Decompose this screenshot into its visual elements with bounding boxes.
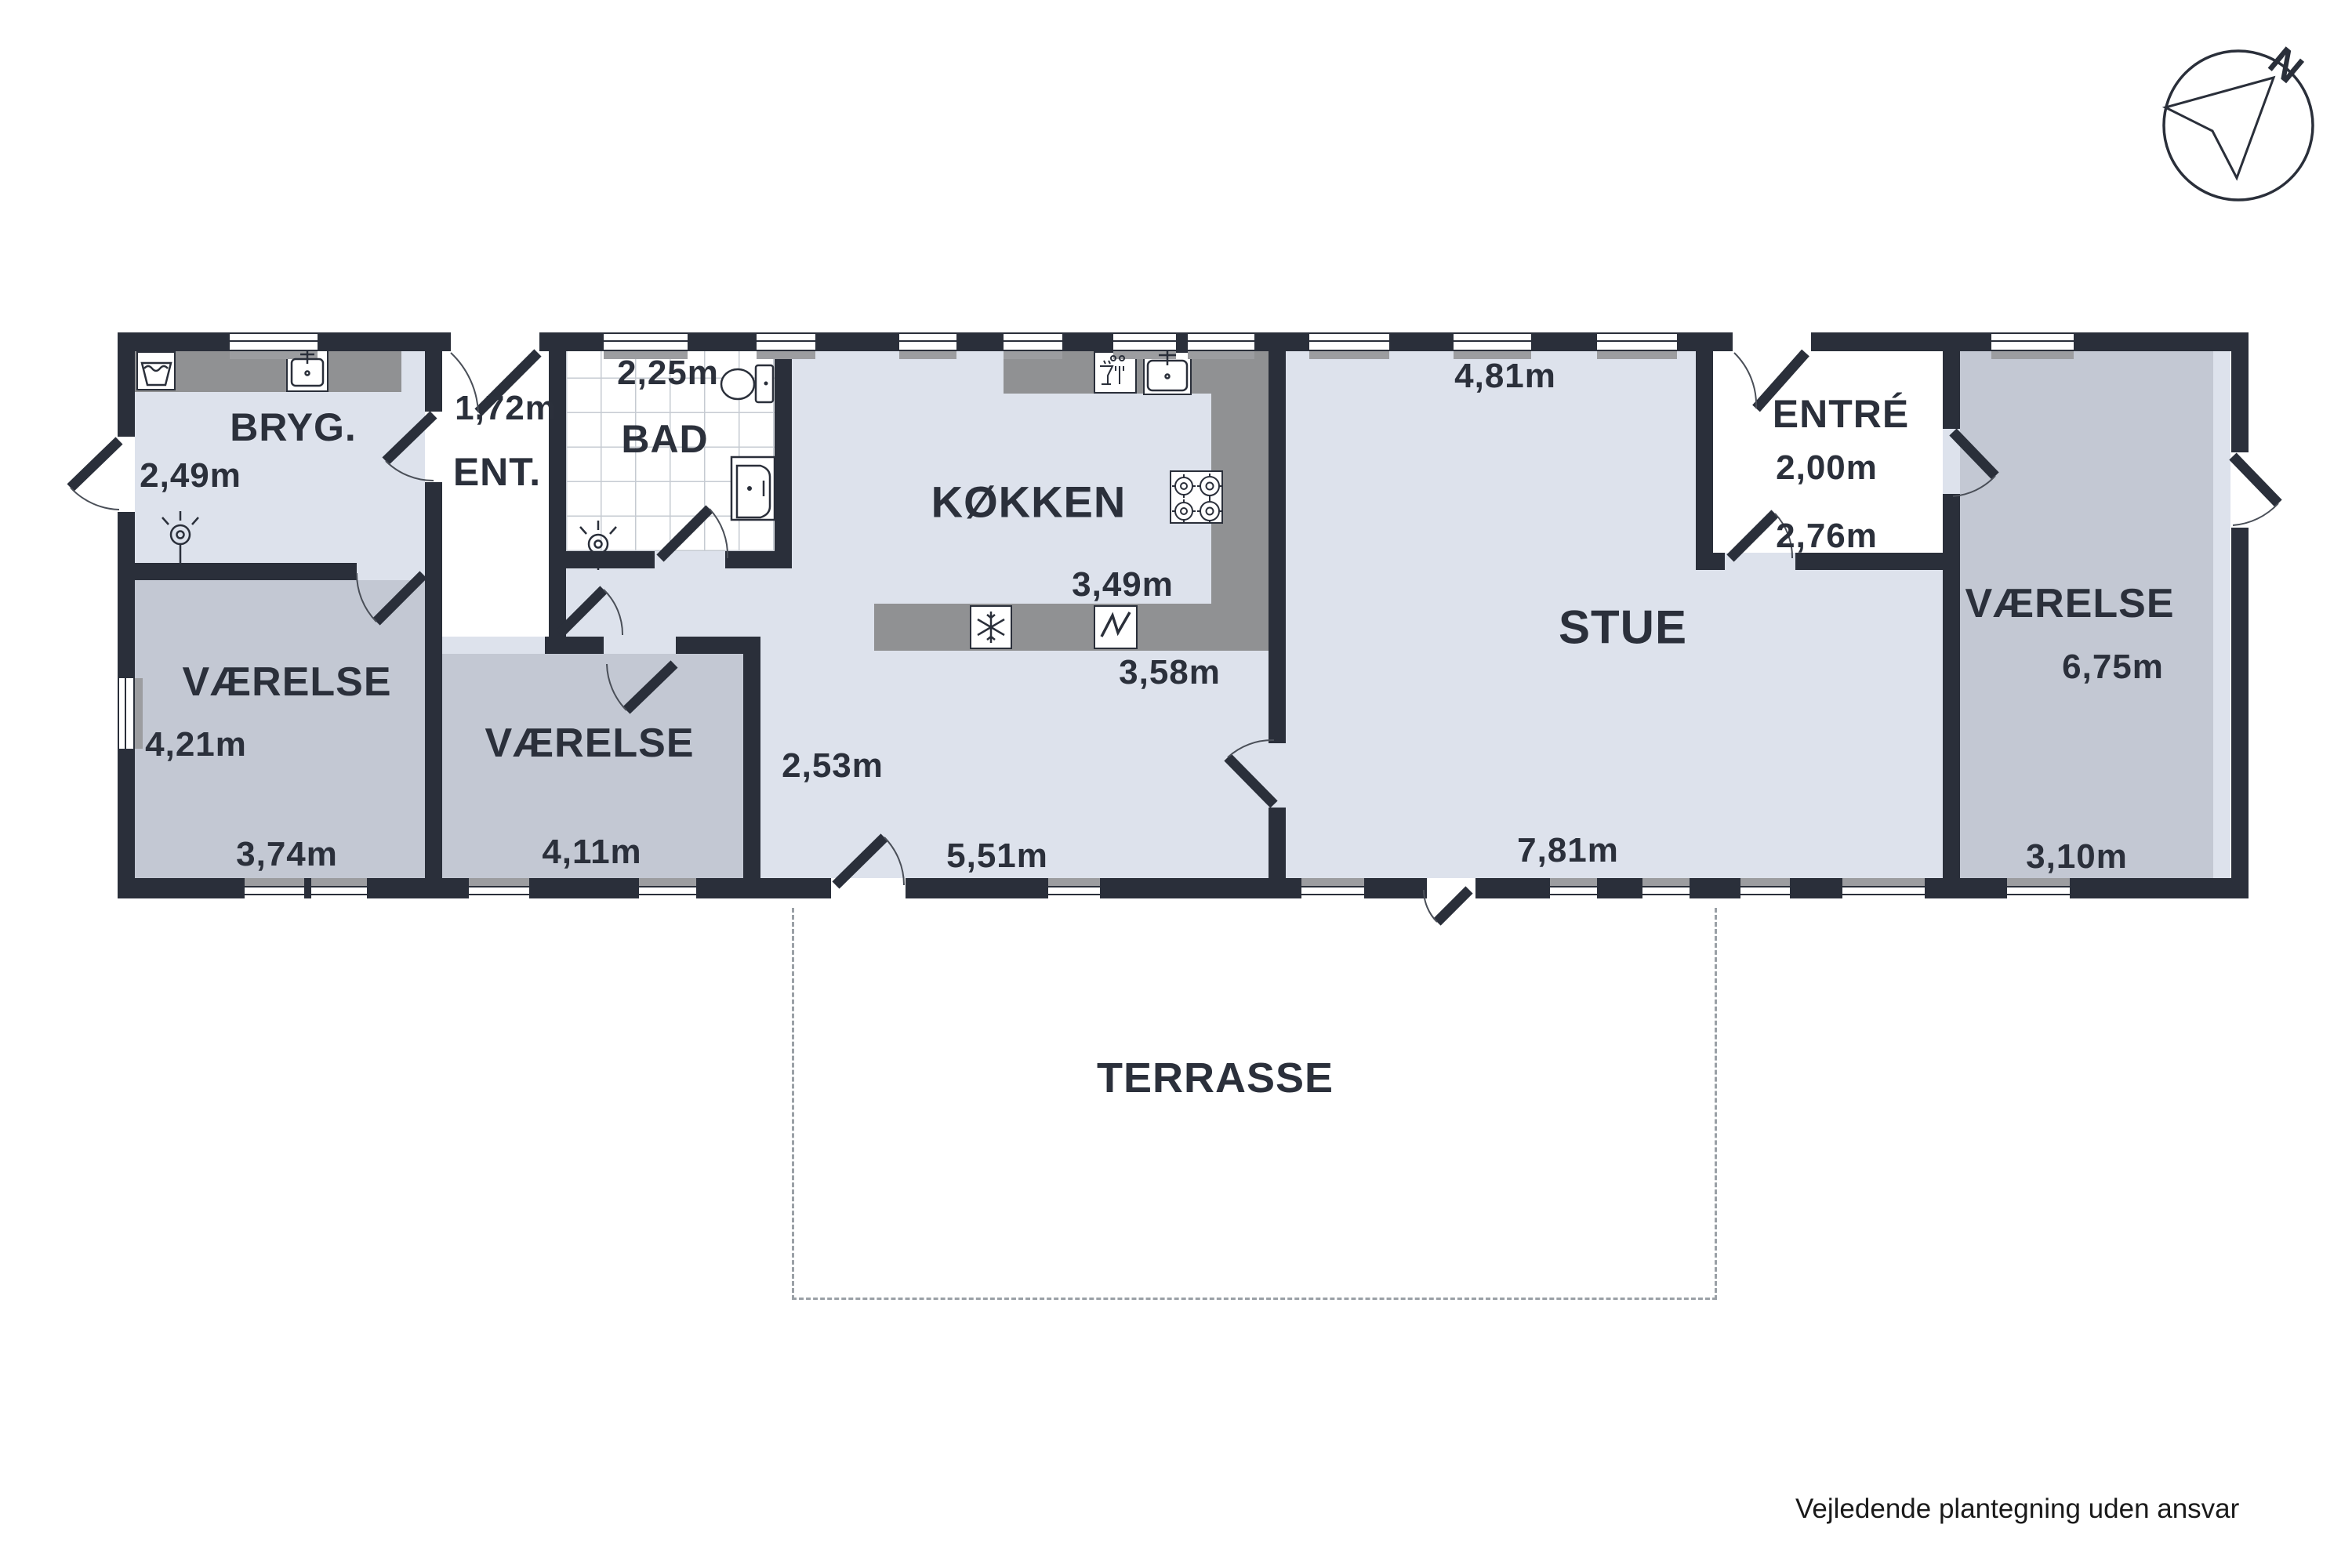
floor-plan: N BRYG. 2,49m ENT. 1,72m BAD 2,25m KØKKE… [0,0,2352,1568]
room-label-bryg: BRYG. [230,405,357,450]
door-arc [1734,353,1756,408]
dim-label: 2,76m [1776,517,1878,556]
door-arc [884,837,904,885]
door-arc [607,664,626,710]
door-leaf [376,575,423,622]
room-label-vaerelse-left: VÆRELSE [182,659,391,706]
dim-label: 6,75m [2062,648,2164,687]
dim-label: 4,81m [1454,357,1556,396]
dishwasher-icon [1100,356,1124,384]
door-leaf [836,837,884,885]
dim-label: 5,51m [946,837,1048,876]
door-leaf [1730,514,1775,558]
door-leaves [71,353,2278,922]
kitchen-sink-icon [1148,351,1187,390]
door-leaf [386,415,434,461]
room-label-vaerelse-right: VÆRELSE [1965,580,2174,627]
door-arc [357,573,376,622]
room-label-vaerelse-mid: VÆRELSE [485,720,694,767]
door-leaf [660,509,710,558]
dim-label: 4,21m [145,725,247,764]
dim-label: 4,11m [542,833,641,872]
door-leaf [626,664,674,710]
door-arc [604,590,622,635]
door-leaf [1953,432,1995,476]
door-arc [2233,503,2278,525]
door-arc [1953,476,1995,496]
dim-label: 3,74m [236,835,338,874]
door-leaf [2233,456,2278,503]
door-leaf [71,441,119,488]
room-label-entre: ENTRÉ [1773,391,1909,437]
dim-label: 3,58m [1119,653,1221,692]
dim-label: 2,00m [1776,448,1878,488]
dim-label: 7,81m [1517,831,1619,870]
door-arc [710,509,728,558]
door-leaf [560,590,604,633]
dim-label: 2,53m [782,746,884,786]
door-arc [71,488,119,510]
dim-label: 2,49m [140,456,241,495]
bathroom-sink-icon [731,457,775,520]
dim-label: 2,25m [617,354,719,393]
freezer-icon [978,612,1004,643]
room-label-kokken: KØKKEN [931,477,1127,528]
ceiling-lamp-icon [580,521,616,570]
door-leaf [1437,890,1469,922]
door-swing-arcs [71,353,2278,922]
stove-icon [1172,474,1222,524]
disclaimer-text: Vejledende plantegning uden ansvar [1795,1494,2239,1525]
dim-label: 1,72m [455,389,557,428]
room-label-ent: ENT. [453,449,541,495]
north-arrow-icon: N [2164,38,2313,200]
dim-label: 3,49m [1072,565,1174,604]
room-label-stue: STUE [1559,601,1687,655]
room-label-bad: BAD [621,416,708,462]
utility-sink-icon [292,351,323,386]
door-leaf [1228,757,1274,804]
toilet-icon [721,365,773,402]
washing-machine-icon [142,363,171,385]
oven-icon [1102,612,1130,637]
dim-label: 3,10m [2026,837,2128,877]
room-label-terrasse: TERRASSE [1097,1054,1334,1102]
door-arc [1228,740,1274,757]
door-arc [386,461,434,481]
ceiling-lamp-icon [162,511,198,563]
doors-and-fixtures-layer: N [0,0,2352,1568]
